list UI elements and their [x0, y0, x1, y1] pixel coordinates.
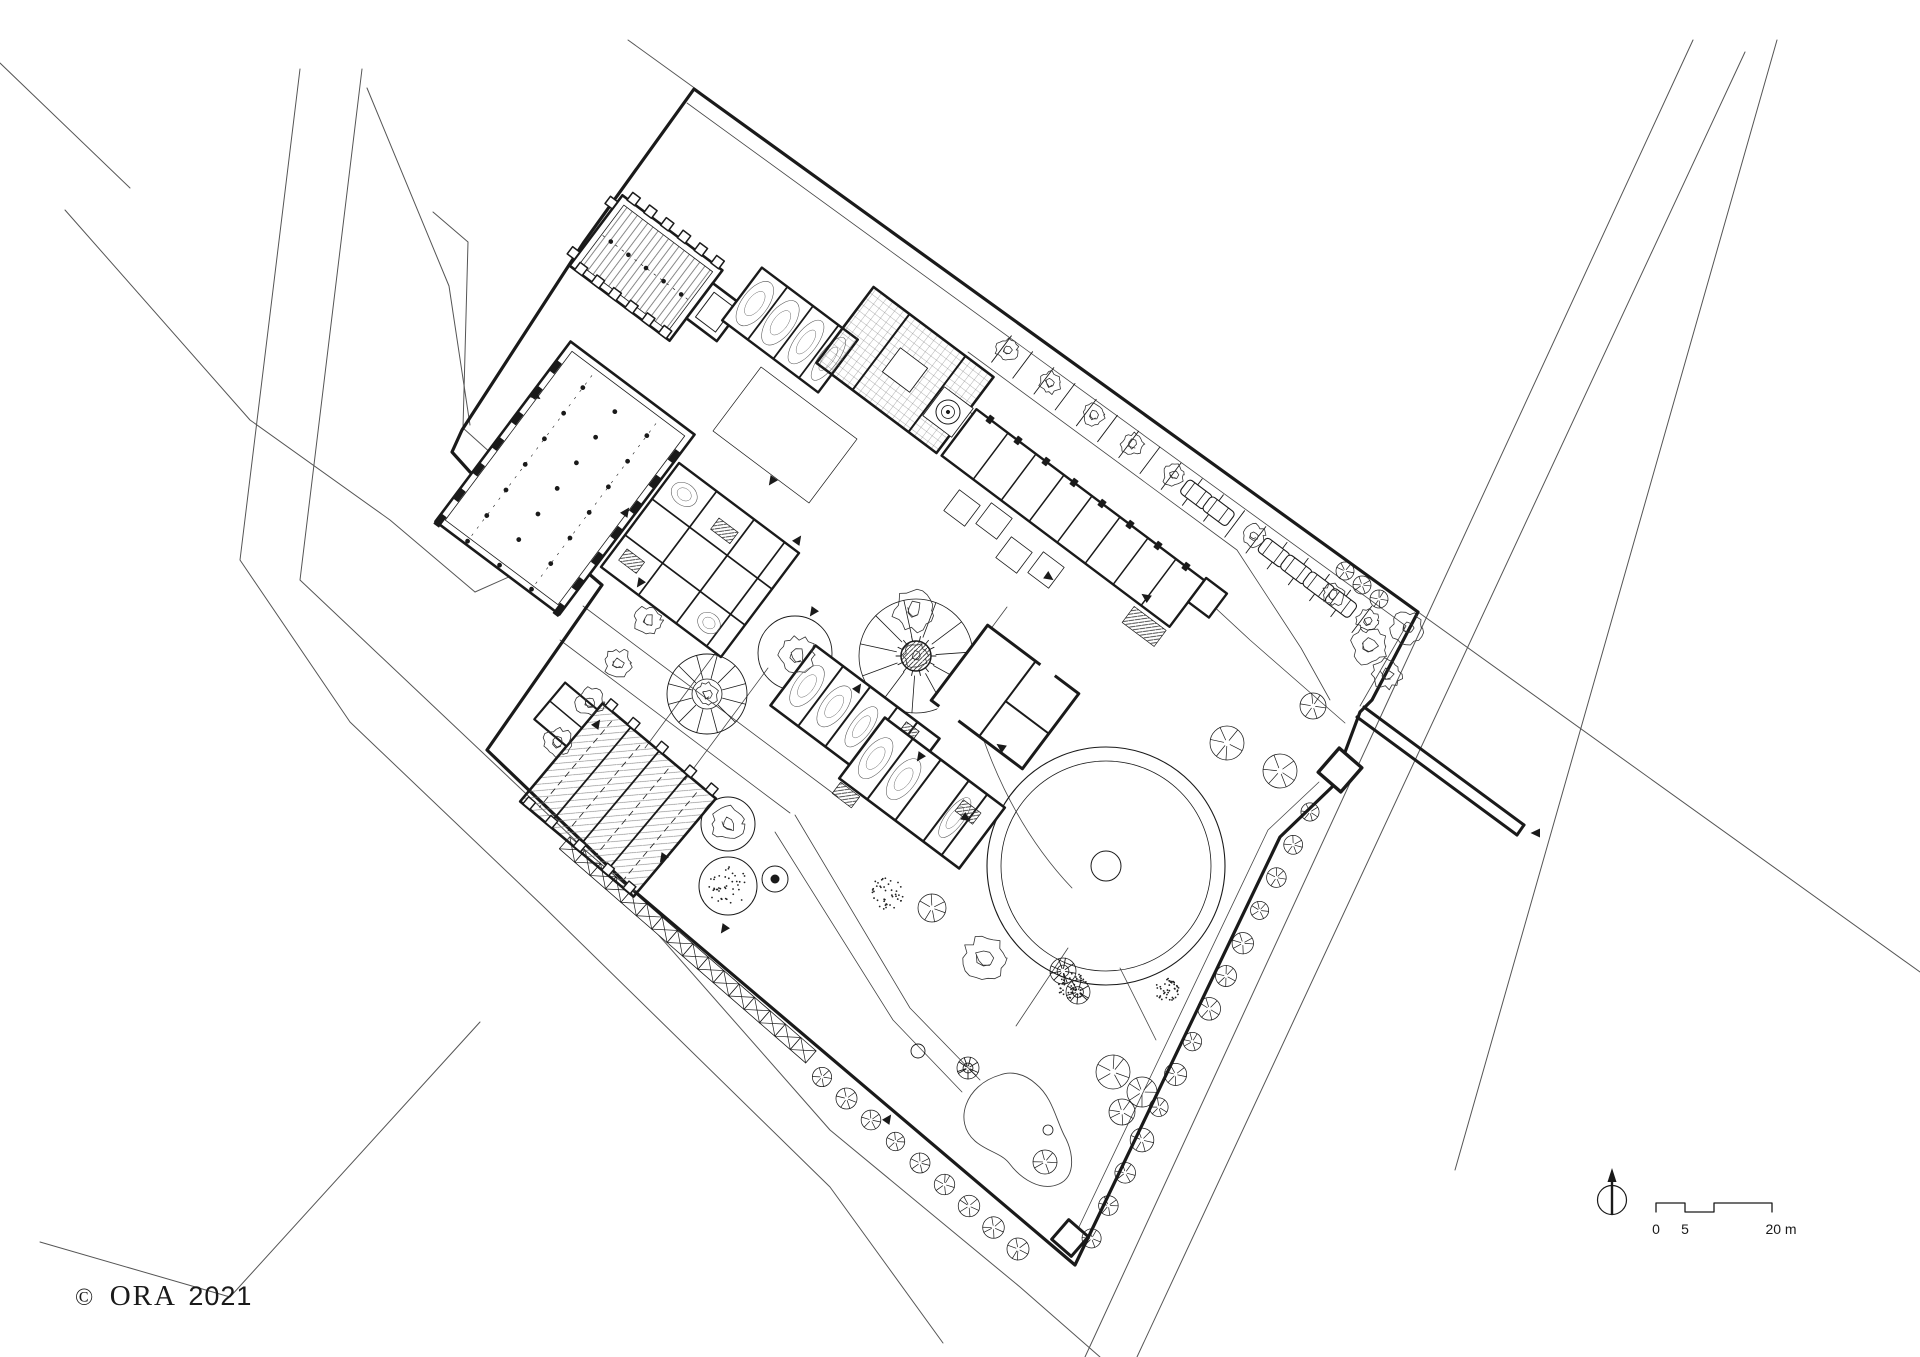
- scale-label-start: 0: [1652, 1221, 1660, 1237]
- copyright-symbol: ©: [75, 1285, 93, 1311]
- scale-label-end: 20 m: [1765, 1221, 1796, 1237]
- scale-label-mid: 5: [1681, 1221, 1689, 1237]
- site-plan-drawing: 0 5 20 m © ORA 2021: [0, 0, 1920, 1357]
- copyright-year: 2021: [188, 1281, 252, 1311]
- copyright-name: ORA: [110, 1280, 177, 1312]
- drawing-sheet: 0 5 20 m © ORA 2021: [0, 0, 1920, 1357]
